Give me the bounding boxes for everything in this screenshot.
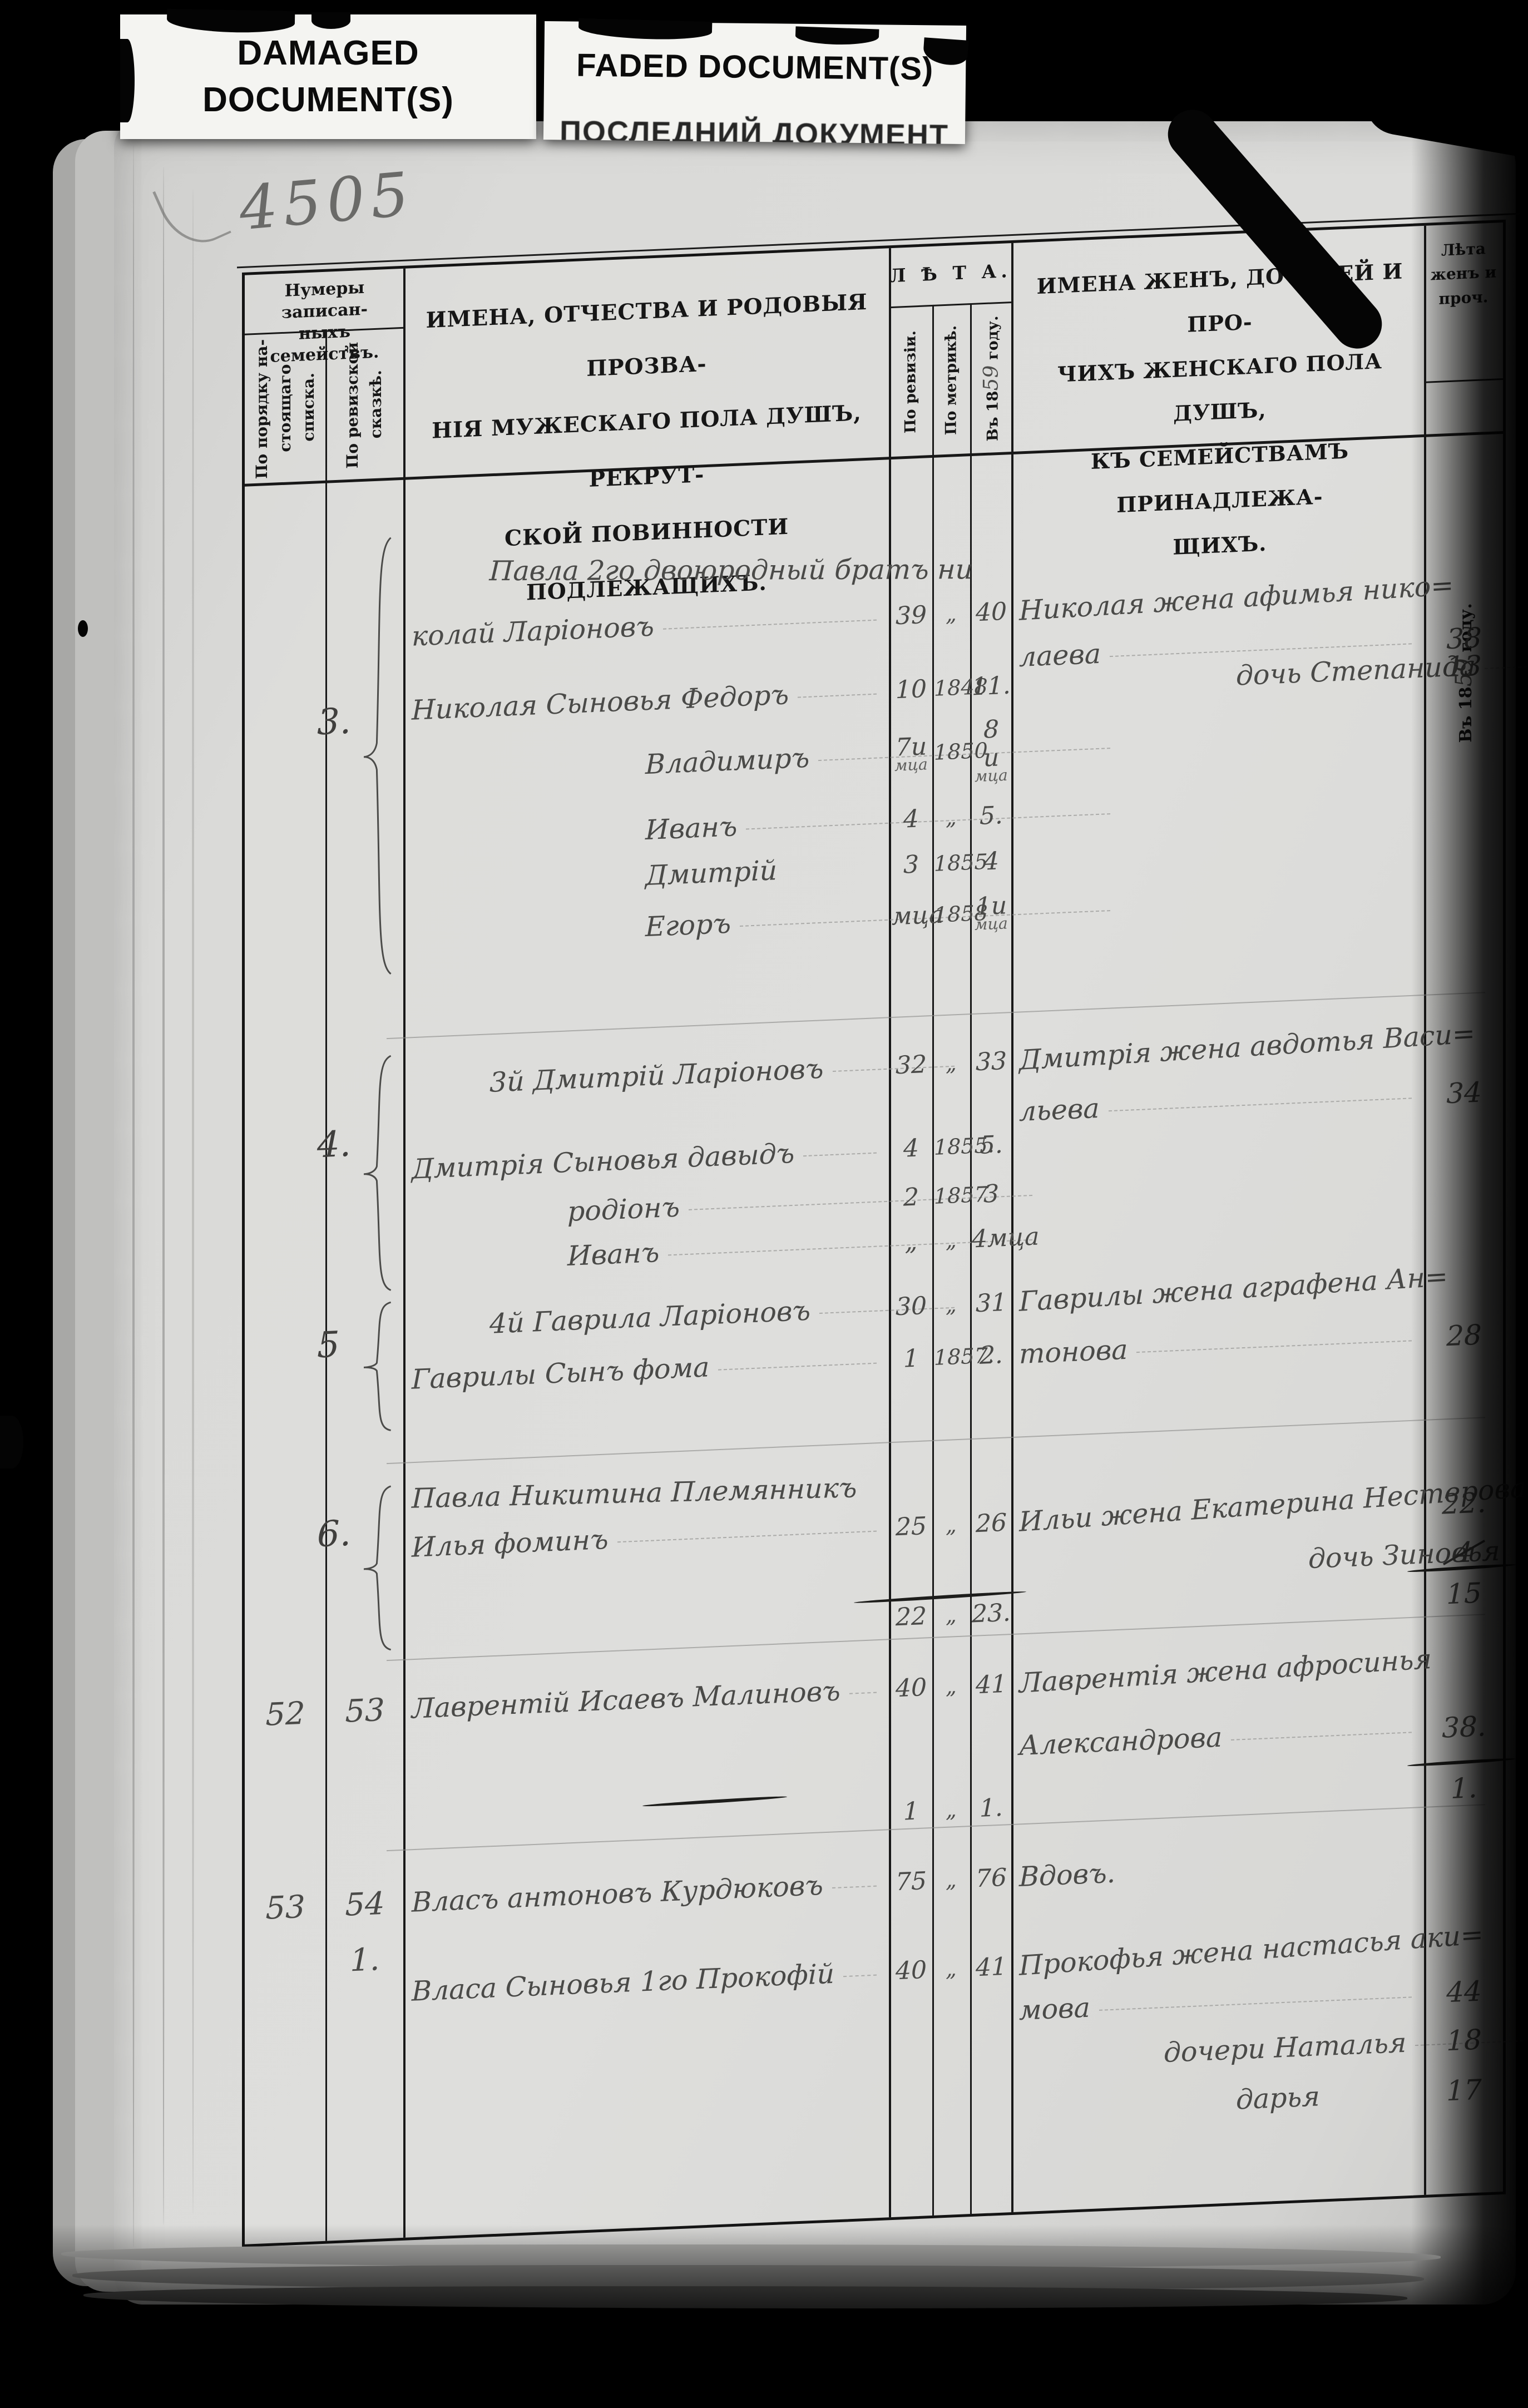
male-name-entry: Лаврентій Исаевъ Малиновъ — [412, 1673, 886, 1725]
section-separator-line — [387, 1417, 1485, 1464]
damage-spot — [311, 12, 350, 29]
female-name-entry: Ильи жена Екатерина Нестерова — [1018, 1479, 1421, 1538]
male-name-text: родіонъ — [567, 1191, 680, 1228]
age-by-metrics: „ — [934, 1227, 968, 1253]
age-by-revision: 40 — [892, 1956, 931, 1986]
age-by-revision: 32 — [892, 1050, 931, 1080]
age-in-1859: 33 — [972, 1047, 1011, 1077]
age-in-1859: 31 — [972, 1288, 1011, 1318]
male-name-text: 4й Гаврила Ларіоновъ — [489, 1295, 810, 1340]
handwritten-dash-line — [663, 620, 877, 630]
damage-spot — [0, 1416, 23, 1468]
female-name-text: мова — [1019, 1992, 1090, 2026]
handwritten-dash-line — [1109, 1097, 1412, 1111]
table-rule — [325, 330, 327, 2241]
table-row: 1„1.1. — [245, 1787, 1503, 1840]
age-by-revision: 2 — [892, 1183, 931, 1213]
handwritten-dash-line — [1099, 1996, 1412, 2011]
female-name-text: льева — [1019, 1092, 1100, 1128]
age-by-revision: „ — [892, 1227, 931, 1257]
female-name-text: дарья — [1236, 2080, 1320, 2115]
age-in-1859: 4мца — [972, 1224, 1011, 1254]
faded-cyrillic-label: ПОСЛЕДНИЙ ДОКУМЕНТ — [543, 114, 965, 144]
male-name-text: Лаврентій Исаевъ Малиновъ — [412, 1675, 840, 1724]
damage-spot — [78, 620, 88, 637]
male-name-text: Иванъ — [567, 1237, 659, 1272]
female-name-text: Александрова — [1019, 1722, 1222, 1762]
age-by-metrics: „ — [934, 601, 968, 627]
table-rule — [970, 303, 972, 2214]
age-by-revision: мца — [892, 901, 931, 931]
age-by-metrics: 1850 — [934, 739, 968, 765]
age-by-metrics: „ — [934, 1602, 968, 1628]
female-name-text: Николая жена афимья нико= — [1019, 570, 1454, 627]
family-number: 3. — [317, 701, 351, 744]
table-row: дарья17 — [245, 2089, 1503, 2142]
family-number: 4. — [317, 1124, 351, 1166]
header-by-revision: По ревизіи. — [889, 306, 932, 457]
female-name-entry: Вдовъ. — [1019, 1845, 1421, 1893]
female-name-text: Гаврилы жена аграфена Ан= — [1019, 1260, 1448, 1318]
header-revision-col: По ревизской сказкѣ. — [325, 329, 403, 481]
age-by-revision: 30 — [892, 1292, 931, 1322]
census-table: Нумеры записан- ныхъ семействъ. По поряд… — [242, 220, 1506, 2247]
age-by-revision: 4 — [892, 804, 931, 834]
age-by-revision: 3 — [892, 850, 931, 880]
age-in-1859: 76 — [972, 1863, 1011, 1893]
male-name-entry: Павла Никитина Племянникъ — [412, 1471, 886, 1515]
female-name-entry: Прокофья жена настасья аки= — [1018, 1923, 1421, 1982]
age-by-revision: 7имца — [892, 732, 931, 775]
age-by-revision: 22 — [892, 1602, 931, 1632]
handwritten-dash-line — [803, 1153, 877, 1157]
age-in-1859: 41 — [972, 1952, 1011, 1982]
male-name-text: 3й Дмитрій Ларіоновъ — [489, 1053, 824, 1099]
age-in-1859: 5. — [972, 1130, 1011, 1160]
table-row: Александрова38. — [245, 1725, 1503, 1778]
revision-number: 54 — [328, 1885, 402, 1924]
female-name-text: дочери Наталья — [1164, 2027, 1406, 2069]
male-name-entry: 4й Гаврила Ларіоновъ — [412, 1288, 963, 1343]
handwritten-dash-line — [843, 1975, 877, 1977]
female-name-entry: Николая жена афимья нико= — [1019, 571, 1421, 627]
age-by-metrics: „ — [934, 1512, 968, 1538]
age-in-1859: 4 — [972, 847, 1011, 877]
age-by-revision: 40 — [892, 1673, 931, 1703]
header-by-metrics: По метрикѣ. — [932, 305, 970, 455]
table-row: Иванъ4„5. — [245, 794, 1503, 847]
age-in-1859: 40 — [972, 597, 1011, 627]
male-name-text: Власъ антоновъ Курдюковъ — [412, 1870, 823, 1919]
male-name-entry: 3й Дмитрій Ларіоновъ — [412, 1047, 963, 1102]
table-rule — [403, 269, 406, 2238]
page-stack-line — [132, 145, 135, 2247]
male-name-text: Дмитрія Сыновья давыдъ — [412, 1138, 794, 1185]
handwritten-dash-line — [617, 1531, 877, 1543]
age-by-revision: 1 — [892, 1797, 931, 1827]
age-in-1859: 41 — [972, 1670, 1011, 1700]
male-name-entry: Павла 2го двоюродный братъ ни — [411, 553, 963, 587]
age-by-metrics: 1855 — [934, 850, 968, 876]
female-name-entry: Дмитрія жена авдотья Васи= — [1019, 1021, 1421, 1076]
female-name-text: Дмитрія жена авдотья Васи= — [1019, 1017, 1476, 1076]
handwritten-dash-line — [718, 1363, 877, 1371]
male-name-text: Егоръ — [645, 908, 731, 943]
handwritten-year: 59 — [979, 364, 1003, 391]
female-name-text: тонова — [1019, 1334, 1128, 1370]
age-by-metrics: „ — [934, 1867, 968, 1893]
table-rule — [932, 305, 934, 2216]
order-number: 52 — [248, 1694, 323, 1734]
age-by-revision: 75 — [892, 1867, 931, 1897]
female-name-text: Лаврентія жена афросинья — [1019, 1643, 1432, 1699]
age-by-metrics: „ — [934, 1956, 968, 1982]
male-name-text: Павла 2го двоюродный братъ ни — [489, 553, 974, 587]
table-row: Дмитрія Сыновья давыдъ41855.5. — [245, 1124, 1503, 1176]
age-by-metrics: „ — [934, 1673, 968, 1699]
table-row: Николая Сыновья Федоръ10184811.дочь Степ… — [245, 665, 1503, 718]
age-by-metrics: „ — [934, 1797, 968, 1823]
age-by-revision: 4 — [892, 1134, 931, 1164]
age-in-1859: 3 — [972, 1179, 1011, 1209]
family-brace — [359, 1301, 399, 1433]
family-number: 6. — [317, 1513, 351, 1556]
order-number: 53 — [248, 1888, 323, 1927]
age-in-1859: 1имца — [972, 891, 1011, 934]
male-name-text: Власа Сыновья 1го Прокофій — [412, 1958, 834, 2008]
age-in-1859: 8 имца — [972, 715, 1011, 786]
male-name-text: Илья фоминъ — [412, 1524, 609, 1564]
female-name-entry: мова — [1019, 1978, 1421, 2026]
male-name-entry: Николая Сыновья Федоръ — [412, 675, 886, 726]
age-by-metrics: 1858 — [934, 901, 968, 927]
age-by-revision: 1 — [892, 1344, 931, 1374]
age-by-revision: 25 — [892, 1512, 931, 1542]
family-brace — [359, 533, 399, 980]
male-name-entry: Власа Сыновья 1го Прокофій — [412, 1956, 886, 2008]
faded-label: FADED DOCUMENT(S) — [544, 43, 966, 91]
male-name-text: Гаврилы Сынъ фома — [412, 1351, 709, 1395]
handwritten-dash-line — [1231, 1732, 1412, 1741]
handwritten-dash-line — [798, 694, 877, 698]
male-name-entry: Дмитрія Сыновья давыдъ — [412, 1134, 886, 1185]
male-name-entry: Илья фоминъ — [412, 1512, 886, 1564]
age-in-1859: 23. — [972, 1599, 1011, 1629]
female-name-entry: тонова — [1019, 1322, 1421, 1370]
age-by-metrics: 1848 — [934, 675, 968, 701]
page-stack-line — [192, 189, 194, 2214]
male-name-entry: Гаврилы Сынъ фома — [412, 1344, 886, 1396]
age-by-metrics: „ — [934, 1050, 968, 1076]
family-number: 5 — [317, 1324, 340, 1367]
revision-number: 1. — [328, 1940, 402, 1980]
age-in-1859: 2. — [972, 1341, 1011, 1371]
header-ages-group: Л Ѣ Т А. — [889, 260, 1012, 286]
age-by-metrics: „ — [934, 1292, 968, 1318]
age-in-1859: 26 — [972, 1509, 1011, 1539]
microfilm-frame: 4505 Нумеры записан- ныхъ семействъ. По … — [0, 0, 1528, 2408]
age-by-metrics: 1857 — [934, 1183, 968, 1209]
age-in-1859: 1. — [972, 1793, 1011, 1823]
revision-number: 53 — [328, 1691, 402, 1730]
damaged-card: DAMAGED DOCUMENT(S) — [120, 14, 536, 139]
male-name-text: Николая Сыновья Федоръ — [412, 679, 789, 726]
film-bottom-shadow — [0, 2224, 1528, 2408]
handwritten-dash-line — [849, 1692, 877, 1694]
header-order-col: По порядку на- стоящаго списка. — [245, 332, 325, 484]
age-in-1859: 5. — [972, 801, 1011, 831]
table-row: 5354Власъ антоновъ Курдюковъ75„76Вдовъ. — [245, 1857, 1503, 1910]
handwritten-dash-line — [1136, 1340, 1412, 1353]
male-name-text: Иванъ — [645, 810, 737, 846]
female-name-entry: Александрова — [1019, 1713, 1421, 1762]
family-brace — [359, 1053, 399, 1294]
age-in-1859: 11. — [972, 671, 1011, 701]
age-by-metrics: 1855. — [934, 1134, 968, 1160]
male-name-text: Дмитрій — [645, 854, 777, 892]
female-name-entry: льева — [1019, 1079, 1421, 1128]
handwritten-dash-line — [832, 1886, 877, 1888]
header-in-year: Въ 1859 году. — [970, 303, 1011, 453]
damage-spot — [120, 39, 135, 122]
family-brace — [359, 1484, 399, 1653]
male-name-entry: Власъ антоновъ Курдюковъ — [412, 1867, 886, 1919]
age-by-metrics: 1857. — [934, 1344, 968, 1370]
male-name-text: Владимиръ — [645, 742, 809, 780]
female-name-entry: Лаврентія жена афросинья — [1019, 1644, 1421, 1699]
female-name-text: Вдовъ. — [1019, 1857, 1115, 1893]
totals-underline — [642, 1795, 787, 1807]
film-right-shadow — [1411, 0, 1528, 2408]
age-by-metrics: „ — [934, 804, 968, 830]
age-by-revision: 39 — [892, 601, 931, 631]
table-row: 5253Лаврентій Исаевъ Малиновъ40„41Лаврен… — [245, 1663, 1503, 1716]
table-row: Владимиръ7имца18508 имца — [245, 729, 1503, 782]
damaged-label: DAMAGED DOCUMENT(S) — [120, 30, 536, 123]
page-stack-line — [162, 167, 165, 2225]
male-name-text: Павла Никитина Племянникъ — [412, 1472, 858, 1515]
faded-card: FADED DOCUMENT(S) ПОСЛЕДНИЙ ДОКУМЕНТ — [543, 21, 966, 144]
female-name-entry: Гаврилы жена аграфена Ан= — [1019, 1262, 1421, 1318]
age-by-revision: 10 — [892, 675, 931, 705]
